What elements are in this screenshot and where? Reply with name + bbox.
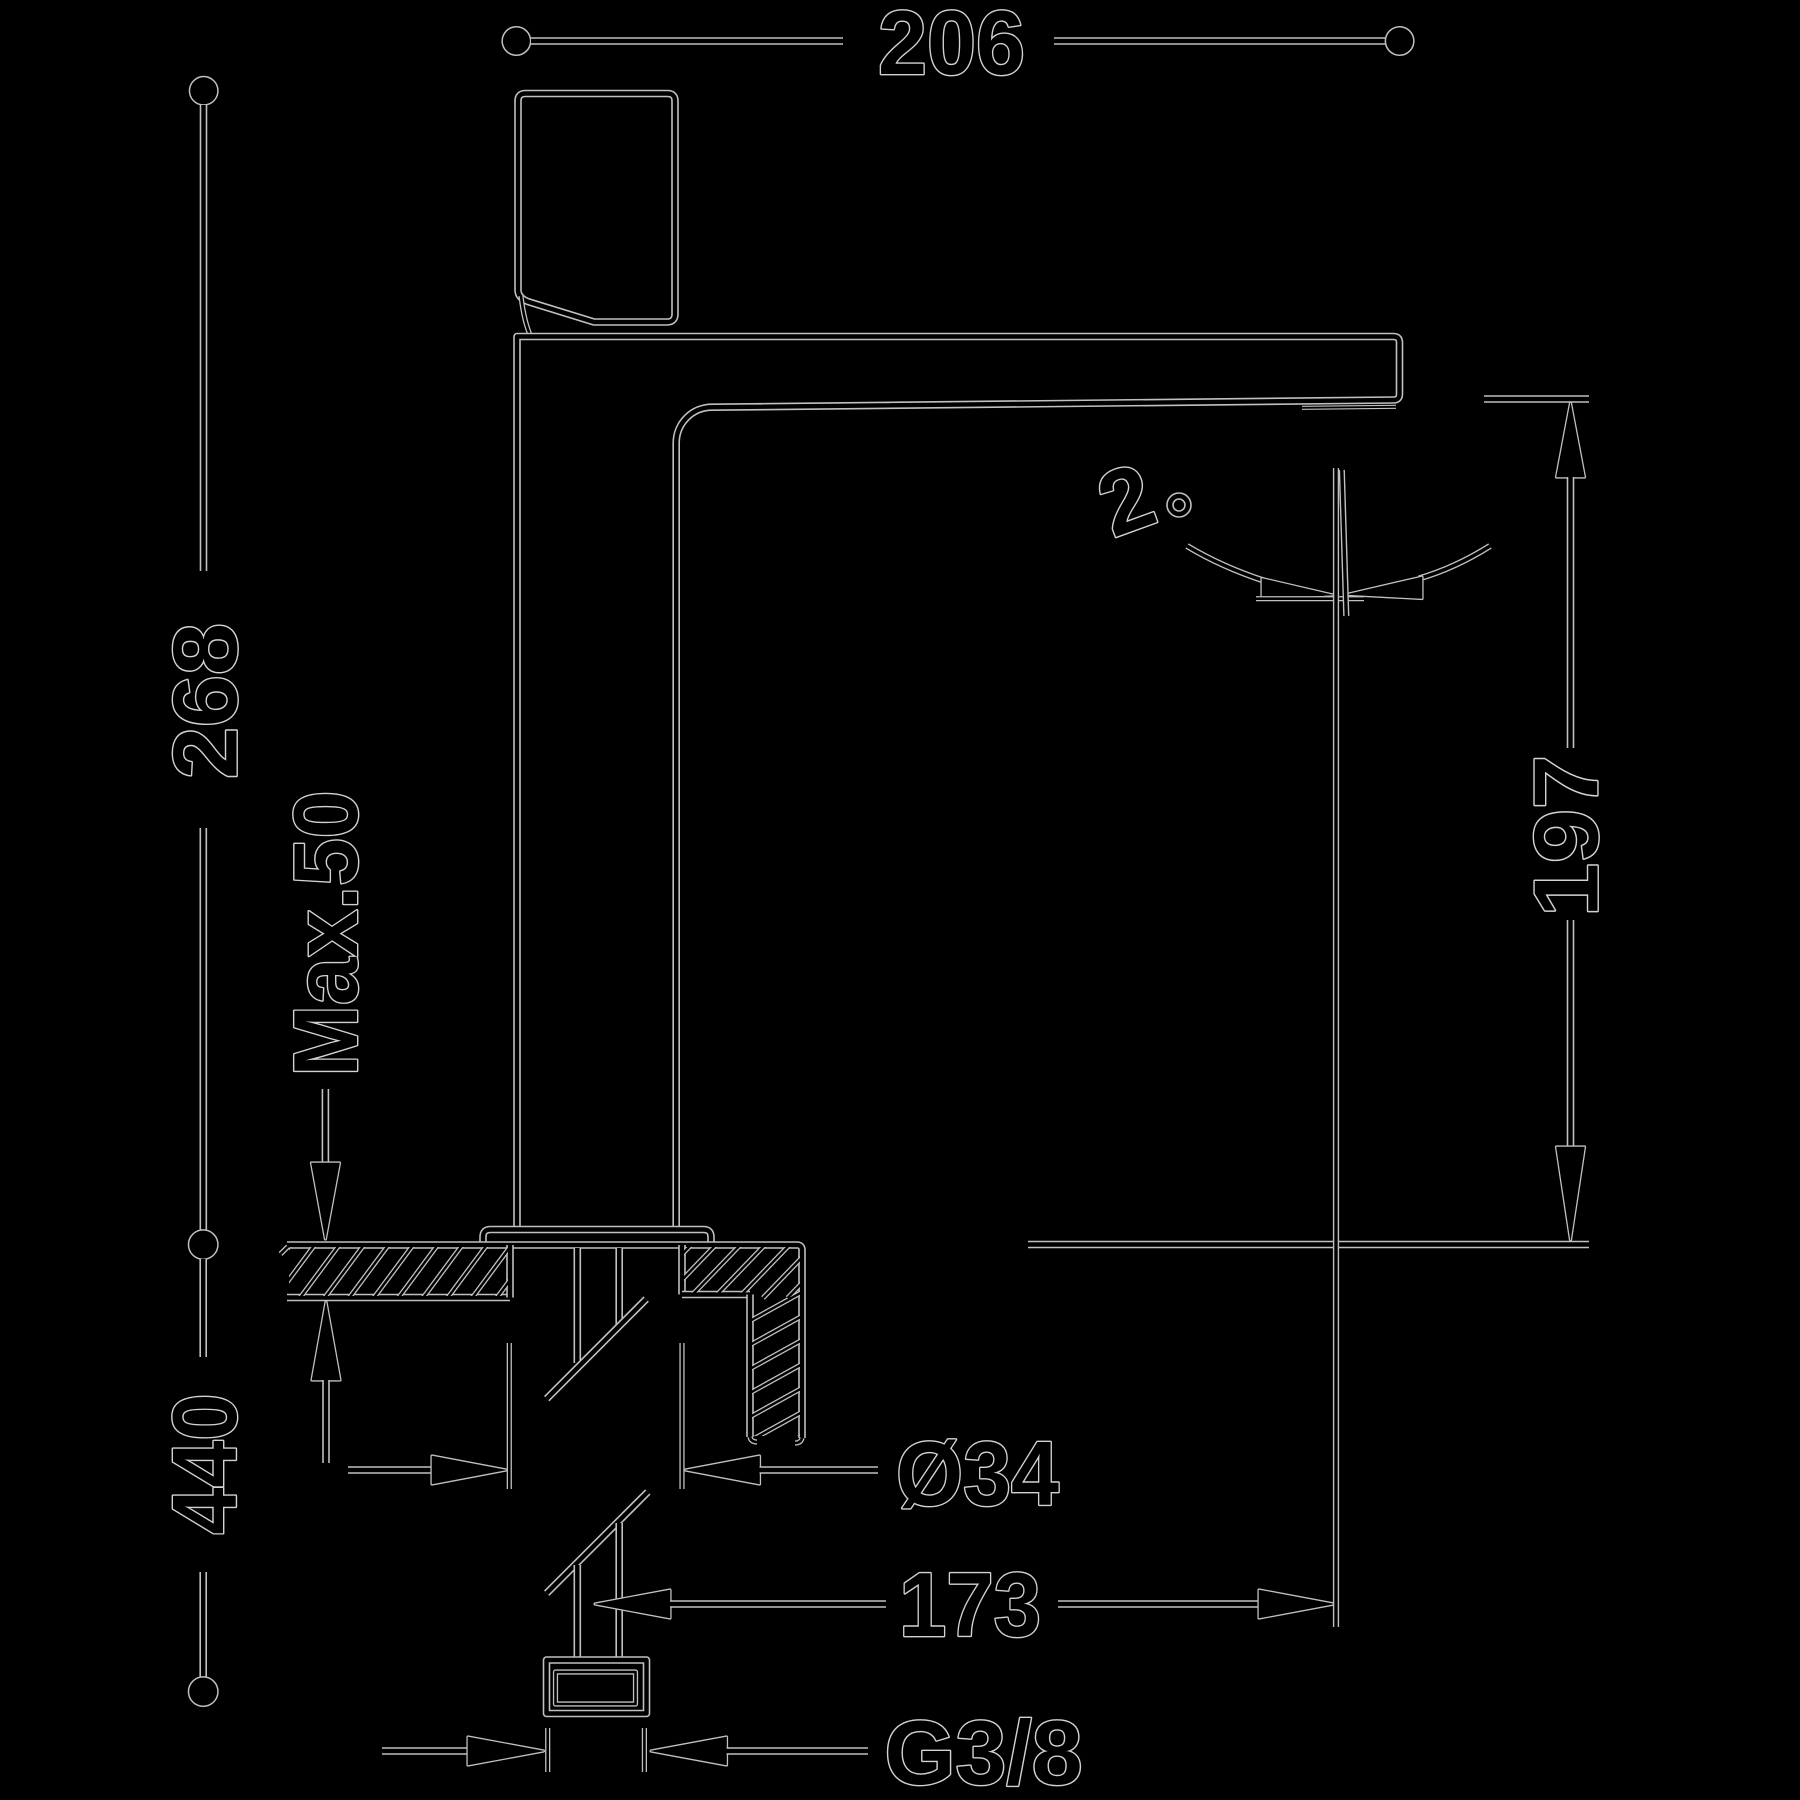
svg-text:206: 206 bbox=[878, 0, 1025, 94]
svg-text:197: 197 bbox=[1517, 755, 1618, 917]
svg-text:173: 173 bbox=[899, 1555, 1041, 1656]
svg-text:268: 268 bbox=[156, 623, 257, 779]
svg-text:Ø34: Ø34 bbox=[896, 1424, 1059, 1525]
svg-text:G3/8: G3/8 bbox=[885, 1703, 1083, 1800]
svg-text:Max.50: Max.50 bbox=[276, 791, 377, 1077]
svg-text:440: 440 bbox=[155, 1394, 256, 1535]
